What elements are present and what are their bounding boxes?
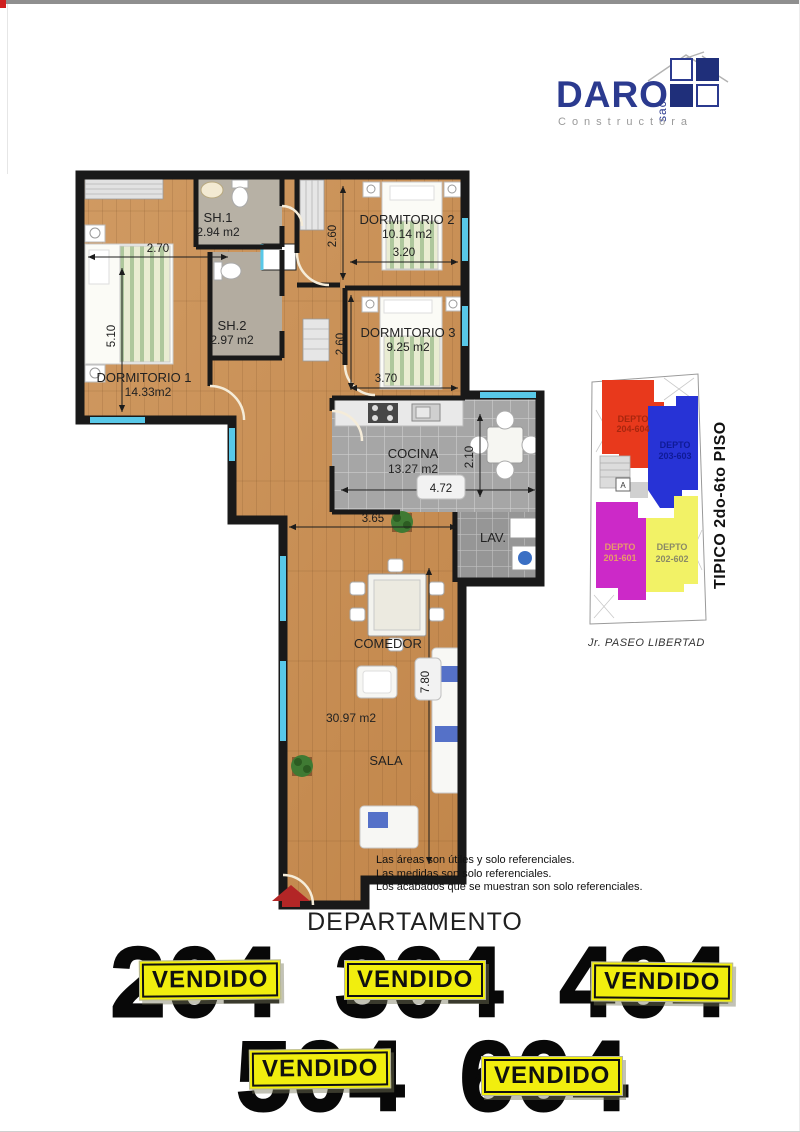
logo-square-outline xyxy=(670,58,693,81)
sold-stamp-404: VENDIDO xyxy=(591,961,734,1002)
dim-comedor-width: 3.65 xyxy=(362,513,384,525)
sold-stamp-label: VENDIDO xyxy=(142,962,279,997)
room-area-dormitorio3: 9.25 m2 xyxy=(386,340,430,354)
room-area-sala: 30.97 m2 xyxy=(326,711,376,725)
room-label-sala: SALA xyxy=(369,753,403,768)
corner-red-mark xyxy=(0,0,6,8)
sold-stamp-label: VENDIDO xyxy=(484,1059,620,1093)
dim-dorm2-depth: 2.60 xyxy=(327,225,339,247)
room-label-dormitorio2: DORMITORIO 2 xyxy=(359,212,454,227)
room-area-cocina: 13.27 m2 xyxy=(388,462,438,476)
disclaimer-line: Los acabados que se muestran son solo re… xyxy=(376,881,643,895)
key-unit-204-line2: 204-604 xyxy=(616,424,649,434)
sold-stamp-label: VENDIDO xyxy=(347,963,483,997)
disclaimer-line: Las medidas son solo referenciales. xyxy=(376,868,643,882)
dim-dorm3-width: 3.70 xyxy=(375,373,397,385)
key-unit-203-line1: DEPTO xyxy=(660,440,691,450)
scan-left-line xyxy=(7,4,8,174)
key-unit-202-line2: 202-602 xyxy=(655,554,688,564)
dim-cocina-depth: 2.10 xyxy=(464,446,476,468)
sold-stamp-label: VENDIDO xyxy=(594,964,731,999)
key-unit-201-line1: DEPTO xyxy=(605,542,636,552)
logo-square-outline xyxy=(696,84,719,107)
room-area-dormitorio2: 10.14 m2 xyxy=(382,227,432,241)
disclaimer-line: Las áreas son útiles y solo referenciale… xyxy=(376,854,643,868)
room-area-dormitorio1: 14.33m2 xyxy=(125,385,172,399)
room-label-dormitorio1: DORMITORIO 1 xyxy=(96,370,191,385)
sold-stamp-504: VENDIDO xyxy=(249,1048,392,1089)
sold-stamp-label: VENDIDO xyxy=(252,1051,389,1086)
dim-dorm2-width: 3.20 xyxy=(393,247,415,259)
room-label-dormitorio3: DORMITORIO 3 xyxy=(360,325,455,340)
key-unit-204-line1: DEPTO xyxy=(618,414,649,424)
elevator-label: A xyxy=(620,481,626,490)
scan-top-border xyxy=(0,0,800,4)
room-label-cocina: COCINA xyxy=(388,446,439,461)
dim-dorm1-width: 2.70 xyxy=(147,243,169,255)
dim-cocina-width: 4.72 xyxy=(430,483,452,495)
sold-stamp-604: VENDIDO xyxy=(481,1056,623,1096)
key-unit-201-line2: 201-601 xyxy=(603,553,636,563)
key-unit-202-line1: DEPTO xyxy=(657,542,688,552)
room-area-sh2: 2.97 m2 xyxy=(210,333,254,347)
dim-sala-depth: 7.80 xyxy=(420,671,432,693)
sold-stamp-204: VENDIDO xyxy=(139,959,282,1000)
sold-stamp-304: VENDIDO xyxy=(344,960,486,1000)
room-label-lavanderia: LAV. xyxy=(480,530,506,545)
disclaimer: Las áreas son útiles y solo referenciale… xyxy=(376,854,643,895)
floor-plan: 2.70 5.10 2.60 3.20 2.60 3.70 2.10 4.72 … xyxy=(60,166,552,916)
key-unit-203-line2: 203-603 xyxy=(658,451,691,461)
flyer-page: { "logo": { "name": "DARO", "suffix": "s… xyxy=(0,0,800,1132)
room-label-comedor: COMEDOR xyxy=(354,636,422,651)
logo-square-filled xyxy=(696,58,719,81)
daro-logo: DARO sac Constructora xyxy=(556,52,756,136)
logo-tagline: Constructora xyxy=(558,116,693,128)
key-plan: A DEPTO 204-604 DEPTO 203-603 DEPTO 201-… xyxy=(586,370,712,632)
logo-square-filled xyxy=(670,84,693,107)
dim-dorm3-depth: 2.60 xyxy=(335,333,347,355)
unit-numbers-row2: 504 604 xyxy=(33,1030,800,1123)
room-label-sh1: SH.1 xyxy=(204,210,233,225)
dim-dorm1-depth: 5.10 xyxy=(106,325,118,347)
street-label: Jr. PASEO LIBERTAD xyxy=(588,637,705,649)
room-area-sh1: 2.94 m2 xyxy=(196,225,240,239)
logo-squares-icon xyxy=(670,58,719,107)
logo-name: DARO xyxy=(556,74,669,116)
room-label-sh2: SH.2 xyxy=(218,318,247,333)
key-plan-caption: TIPICO 2do-6to PISO xyxy=(705,380,737,630)
